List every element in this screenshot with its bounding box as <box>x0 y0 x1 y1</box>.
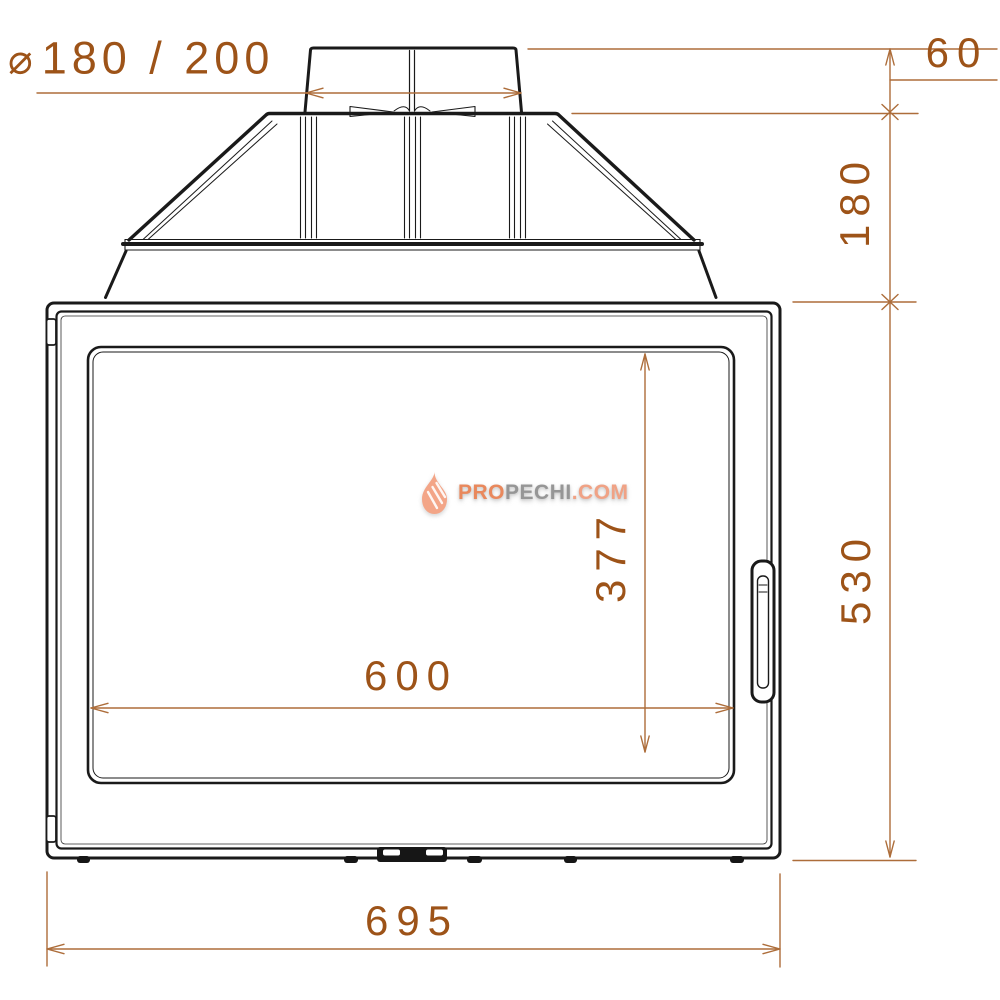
smoke-hood <box>106 114 717 298</box>
diameter-symbol: ⌀ <box>8 36 38 84</box>
hinge-bottom-icon <box>47 816 57 842</box>
firebox-body <box>47 303 781 858</box>
dim-glass-height <box>641 354 649 752</box>
collar-height-label: 60 <box>926 32 989 74</box>
technical-drawing-canvas: ⌀180 / 200 60 180 530 377 600 695 PROPEC… <box>0 0 1000 1000</box>
body-height-label: 530 <box>835 531 877 625</box>
hinge-top-icon <box>47 319 57 345</box>
door-frame <box>57 312 772 849</box>
glass-height-label: 377 <box>590 509 632 603</box>
hood-height-label: 180 <box>834 154 876 248</box>
flue-diameter-label: ⌀180 / 200 <box>8 36 274 81</box>
overall-width-label: 695 <box>365 900 459 942</box>
propechi-watermark: PROPECHI.COM <box>418 470 629 515</box>
glass-door <box>88 347 734 783</box>
hood-ribs <box>301 117 526 238</box>
chimney-collar <box>305 48 522 117</box>
glass-width-label: 600 <box>364 655 458 697</box>
dim-glass-width <box>91 703 733 712</box>
watermark-text-pro: PRO <box>458 482 505 503</box>
flame-icon <box>418 470 451 515</box>
watermark-text-pechi: PECHI <box>505 482 572 503</box>
door-handle-icon <box>752 561 774 702</box>
watermark-text-domain: .COM <box>572 482 629 503</box>
flue-diameter-value: 180 / 200 <box>42 33 275 84</box>
dim-flue-diameter <box>37 88 521 98</box>
